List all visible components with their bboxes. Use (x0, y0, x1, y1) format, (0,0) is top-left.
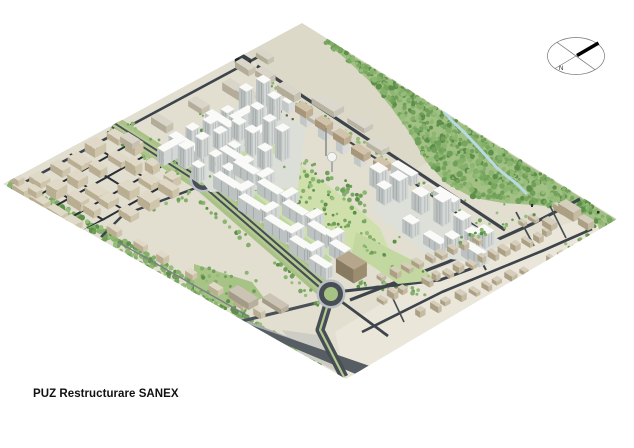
svg-text:PUZ Restructurare SANEX: PUZ Restructurare SANEX (33, 388, 179, 400)
svg-text:N: N (559, 66, 563, 72)
